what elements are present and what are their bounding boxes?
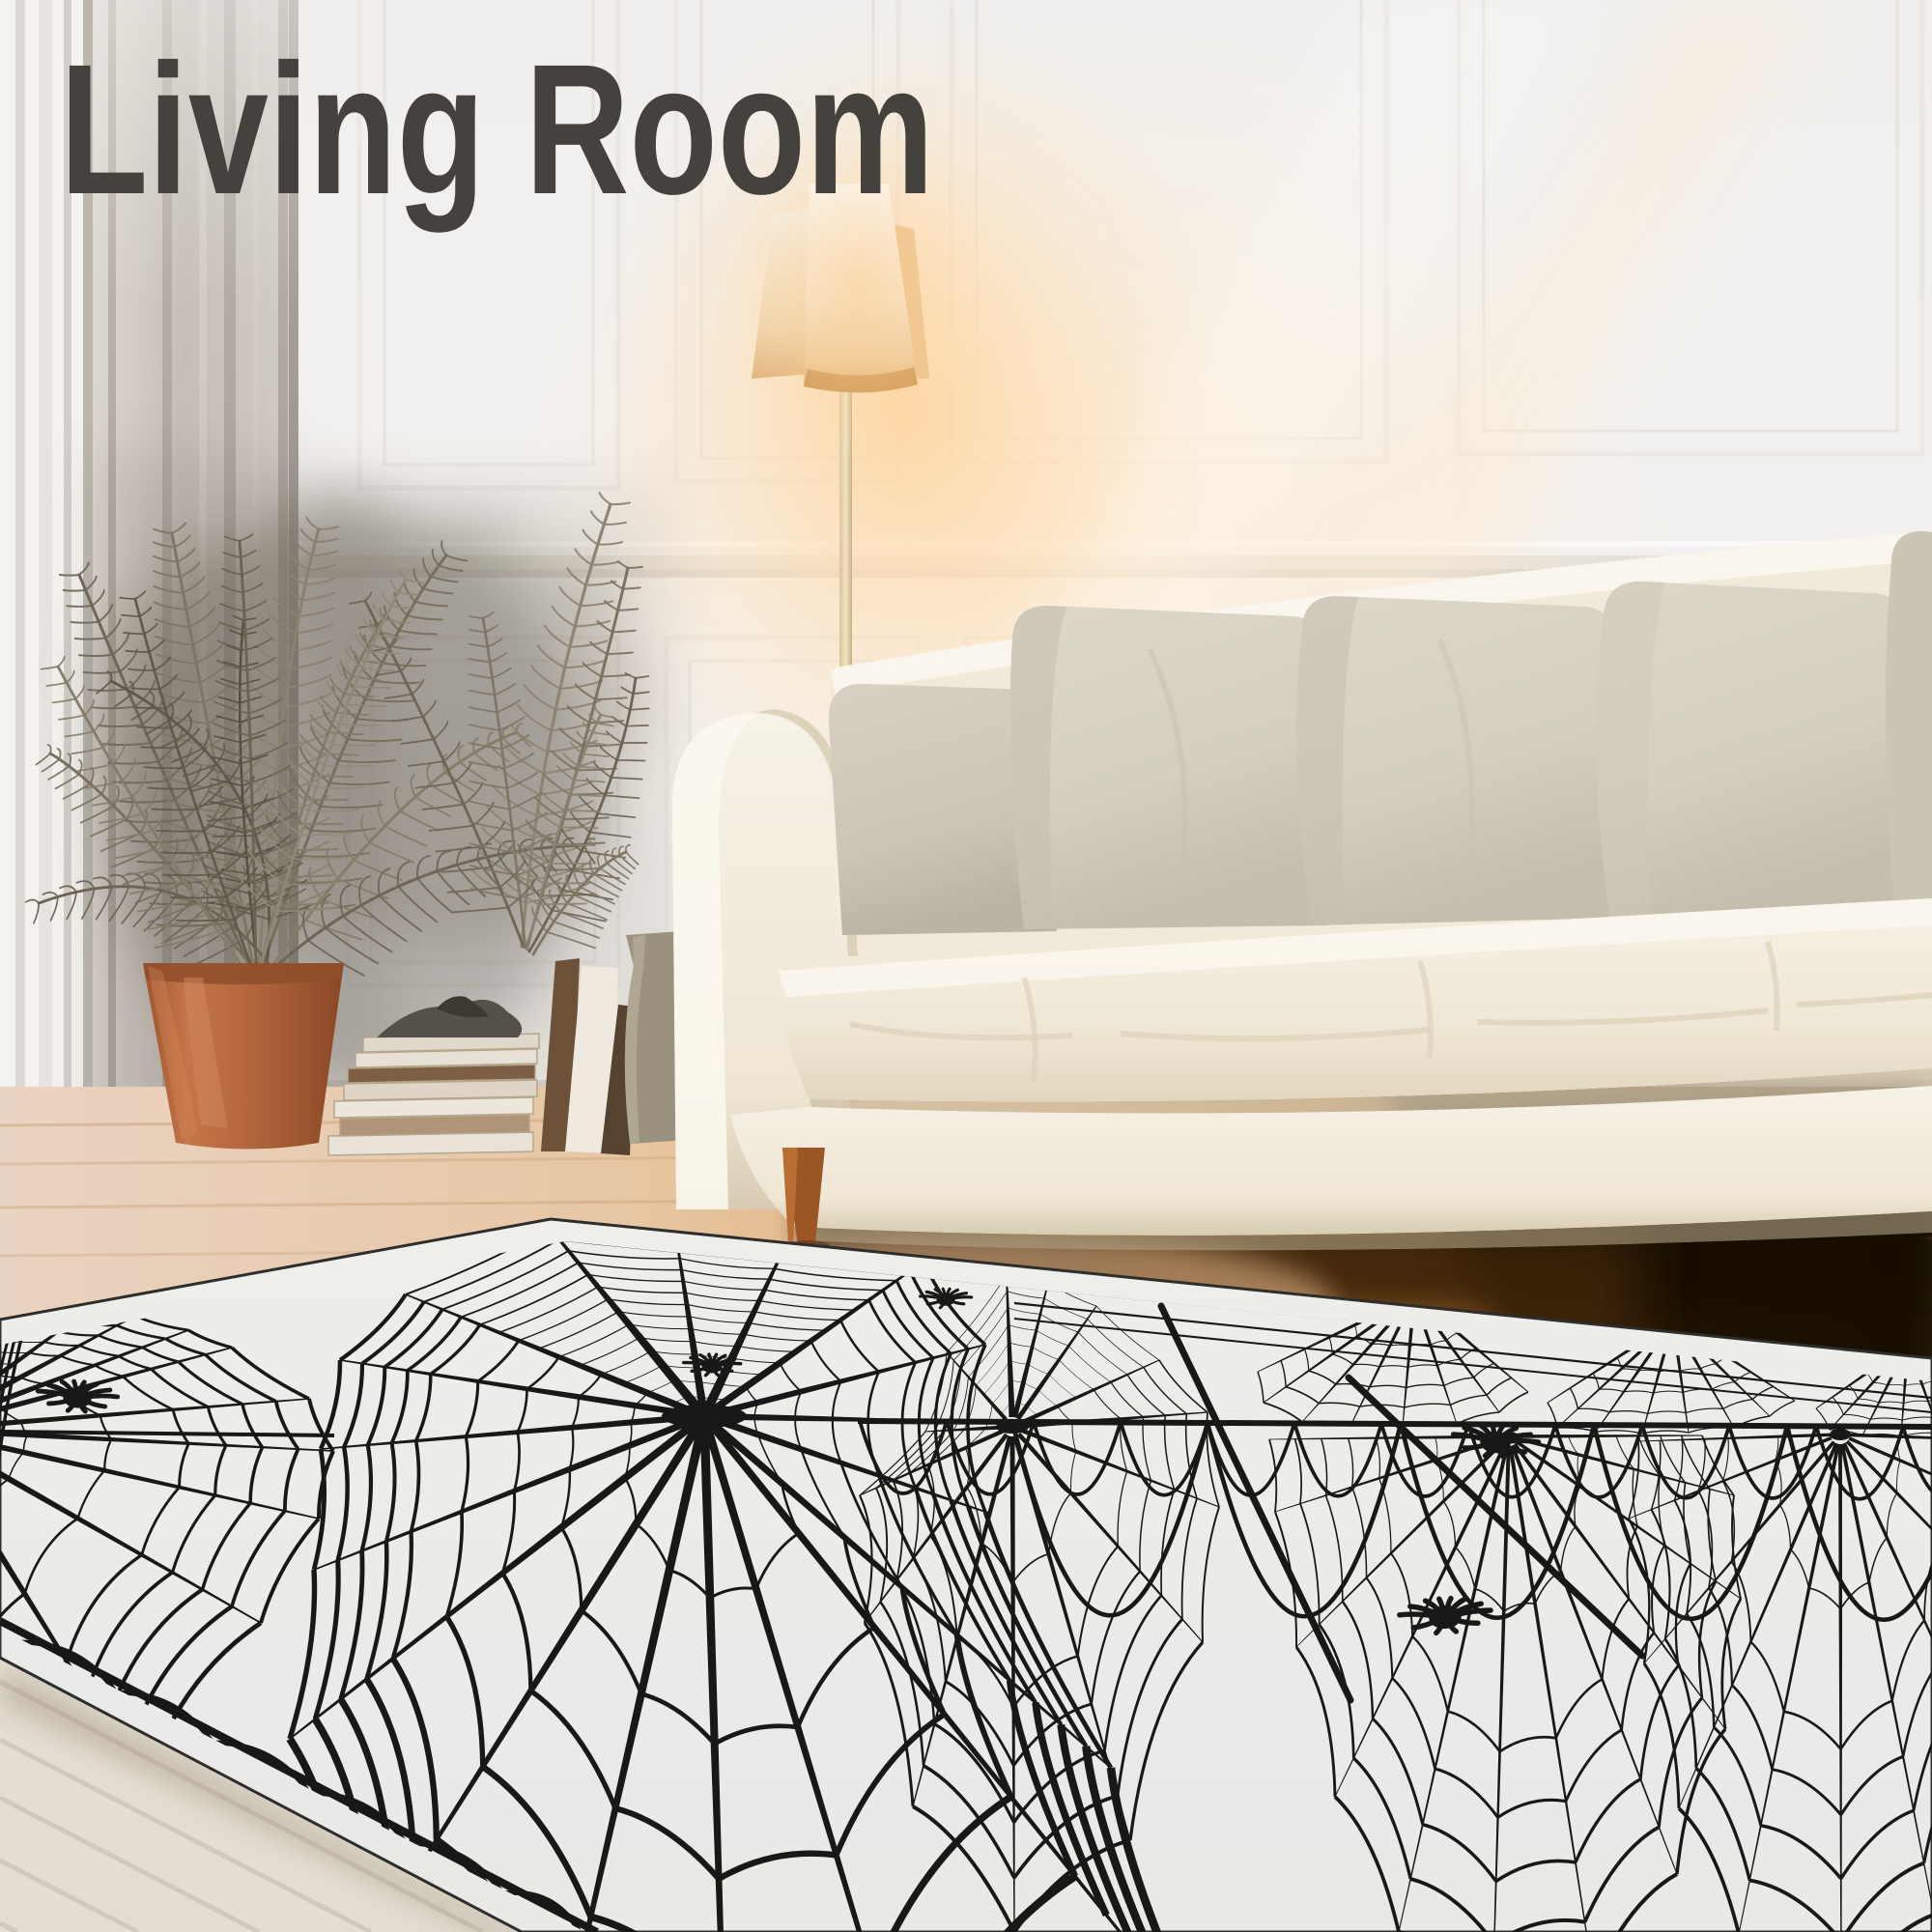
- svg-text:Living Room: Living Room: [60, 25, 934, 233]
